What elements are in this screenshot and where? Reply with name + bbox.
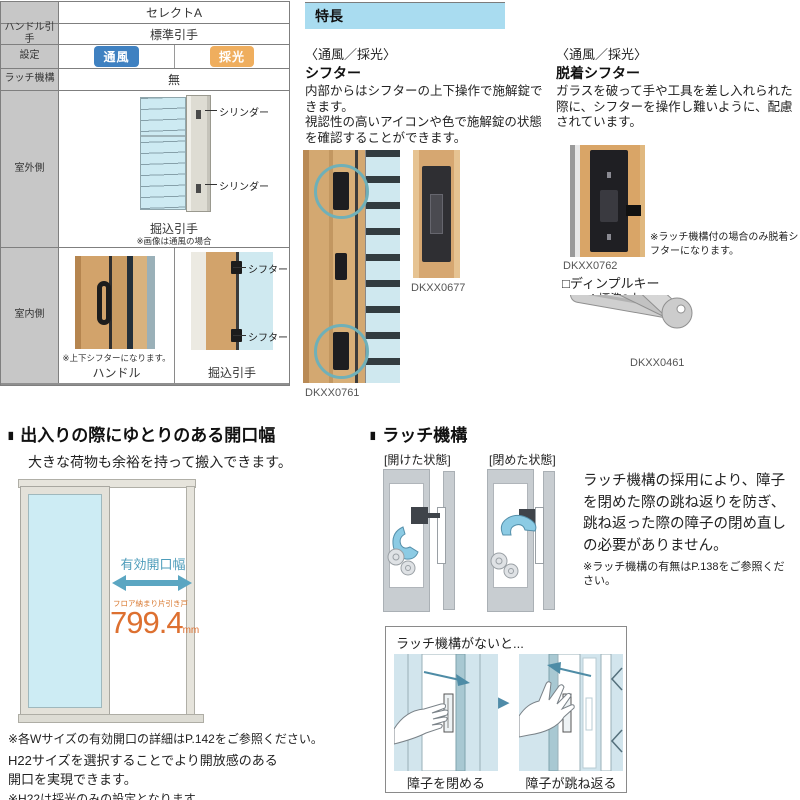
lock-icon-mark-top [607, 172, 611, 178]
indoor-handle-photo [75, 256, 155, 349]
bounce-back-illustration [519, 654, 623, 771]
width-unit: mm [183, 625, 200, 636]
indoor-left-caption: ハンドル [59, 364, 174, 381]
row-setting-label: 設定 [1, 45, 59, 68]
shifter-body: 内部からはシフターの上下操作で施解錠できます。 視認性の高いアイコンや色で施解錠… [305, 84, 547, 146]
removable-shifter-category: 〈通風／採光〉 [556, 44, 647, 63]
row-setting: 設定 通風 採光 [1, 45, 289, 69]
diagram-door-panel [20, 486, 110, 716]
keys-illustration [565, 295, 710, 365]
daylight-badge: 採光 [210, 46, 254, 67]
indoor-right-caption: 掘込引手 [175, 364, 289, 381]
diagram-threshold [18, 714, 204, 723]
callout-line [205, 184, 217, 185]
shifter-category: 〈通風／採光〉 [305, 44, 396, 63]
removable-shifter-photo [570, 145, 645, 257]
shifter-body-p1: 内部からはシフターの上下操作で施解錠できます。 [305, 84, 547, 115]
louver-divider [141, 135, 185, 137]
effective-opening-label: 有効開口幅 [112, 554, 194, 573]
outdoor-louver-panel-illustration [140, 97, 186, 210]
bounce-back-caption: 障子が跳ね返る [519, 773, 623, 792]
shifter-body-p2: 視認性の高いアイコンや色で施解錠の状態を確認することができます。 [305, 115, 547, 146]
row-indoor-content: ※上下シフターになります。 ハンドル シフター シフター 掘込引手 [59, 248, 289, 383]
row-latch: ラッチ機構 無 [1, 69, 289, 91]
opening-notes: ※各Wサイズの有効開口の詳細はP.142をご参照ください。 H22サイズを選択す… [8, 730, 323, 800]
select-a-header: セレクトA [59, 2, 289, 23]
shifter-callout-bottom: シフター [248, 329, 288, 344]
highlight-circle-bottom [314, 324, 369, 379]
latch-body-text: ラッチ機構の採用により、障子を閉めた際の跳ね返りを防ぎ、跳ね返った際の障子の閉め… [583, 471, 799, 557]
features-header-bar: 特長 [305, 2, 505, 29]
highlight-circle-top [314, 164, 369, 219]
removable-shifter-panel [590, 150, 628, 252]
diagram-glass [28, 494, 102, 708]
section-bullet-icon: ■ [8, 426, 14, 446]
spec-table: セレクトA ハンドル引手 標準引手 設定 通風 採光 ラッチ機構 無 室外側 [0, 1, 290, 386]
section-bullet-icon: ■ [370, 426, 376, 446]
shifter-unit-middle [335, 253, 347, 280]
table-corner-cell [1, 2, 59, 23]
lock-icon-mark-bottom [607, 234, 611, 240]
setting-ventilation-cell: 通風 [59, 45, 174, 68]
callout-line [233, 335, 246, 336]
no-latch-box: ラッチ機構がないと... ▶ [385, 626, 627, 793]
setting-daylight-cell: 採光 [174, 45, 289, 68]
catalog-page: セレクトA ハンドル引手 標準引手 設定 通風 採光 ラッチ機構 無 室外側 [0, 0, 800, 800]
shifter-panel-illustration [422, 166, 451, 262]
close-door-caption: 障子を閉める [394, 773, 498, 792]
latch-knob [626, 205, 641, 216]
handle-grip-illustration [97, 281, 111, 325]
row-latch-value: 無 [59, 69, 289, 90]
opening-heading-text: 出入りの際にゆとりのある開口幅 [20, 426, 275, 445]
ventilation-badge: 通風 [94, 46, 138, 67]
opening-subheading: 大きな荷物も余裕を持って搬入できます。 [28, 452, 292, 472]
photo-code-0761: DKXX0761 [305, 387, 359, 399]
opening-note-3: 開口を実現できます。 [8, 769, 323, 788]
opening-width-value: 799.4mm [110, 605, 199, 641]
outdoor-frame-strip-illustration [186, 95, 211, 212]
cylinder-callout-bottom: シリンダー [219, 178, 269, 193]
shifter-slider-illustration [430, 194, 443, 234]
latch-note: ※ラッチ機構の有無はP.138をご参照ください。 [583, 560, 788, 588]
row-handle: ハンドル引手 標準引手 [1, 24, 289, 45]
indoor-left-cell: ※上下シフターになります。 ハンドル [59, 248, 174, 383]
latch-closed-illustration [487, 469, 567, 612]
row-indoor: 室内側 ※上下シフターになります。 ハンドル シフター [1, 248, 289, 385]
latch-open-state-label: [開けた状態] [384, 451, 451, 468]
row-outdoor: 室外側 シリンダー シリンダー 掘込引手 ※画像は通風の場合 [1, 91, 289, 248]
photo-code-0677: DKXX0677 [411, 282, 465, 294]
opening-note-2: H22サイズを選択することでより開放感のある [8, 750, 323, 769]
outdoor-note: ※画像は通風の場合 [59, 235, 289, 247]
row-indoor-label: 室内側 [1, 248, 59, 383]
latch-open-illustration [383, 469, 463, 612]
opening-note-1: ※各Wサイズの有効開口の詳細はP.142をご参照ください。 [8, 730, 323, 747]
cylinder-bottom-mark [196, 184, 201, 193]
no-latch-title: ラッチ機構がないと... [396, 633, 524, 652]
photo-code-0461: DKXX0461 [630, 357, 684, 369]
indoor-left-note: ※上下シフターになります。 [59, 352, 174, 364]
latch-closed-state-label: [閉めた状態] [489, 451, 556, 468]
latch-section-heading: ■ラッチ機構 [370, 421, 467, 446]
photo-code-0762: DKXX0762 [563, 260, 617, 272]
removable-shifter-title: 脱着シフター [556, 63, 640, 83]
cylinder-top-mark [196, 110, 201, 119]
close-door-illustration [394, 654, 498, 771]
removable-shifter-body: ガラスを破って手や工具を差し入れられた際に、シフターを操作し難いように、配慮され… [556, 84, 800, 131]
arrow-right-icon: ▶ [498, 693, 510, 711]
row-setting-value: 通風 採光 [59, 45, 289, 68]
callout-line [205, 110, 217, 111]
latch-heading-text: ラッチ機構 [382, 426, 467, 445]
double-arrow-icon [112, 574, 192, 592]
row-handle-label: ハンドル引手 [1, 24, 59, 44]
row-latch-label: ラッチ機構 [1, 69, 59, 90]
shifter-title: シフター [305, 63, 361, 83]
shifter-callout-top: シフター [248, 261, 288, 276]
removable-shifter-note: ※ラッチ機構付の場合のみ脱着シフターになります。 [650, 231, 800, 259]
shifter-door-photo [303, 150, 400, 383]
opening-section-heading: ■出入りの際にゆとりのある開口幅 [8, 421, 275, 446]
opening-width-diagram: 有効開口幅 フロア納まり片引き戸 799.4mm [18, 478, 204, 724]
row-handle-value: 標準引手 [59, 24, 289, 44]
row-outdoor-content: シリンダー シリンダー 掘込引手 ※画像は通風の場合 [59, 91, 289, 247]
indoor-right-cell: シフター シフター 掘込引手 [174, 248, 289, 383]
width-number: 799.4 [110, 605, 183, 640]
callout-line [233, 267, 246, 268]
cylinder-callout-top: シリンダー [219, 104, 269, 119]
row-outdoor-label: 室外側 [1, 91, 59, 247]
shifter-closeup-photo [413, 150, 460, 278]
louver-slats-illustration [365, 150, 400, 383]
shifter-recess [600, 190, 618, 222]
opening-note-4: ※H22は採光のみの設定となります。 [8, 790, 323, 800]
